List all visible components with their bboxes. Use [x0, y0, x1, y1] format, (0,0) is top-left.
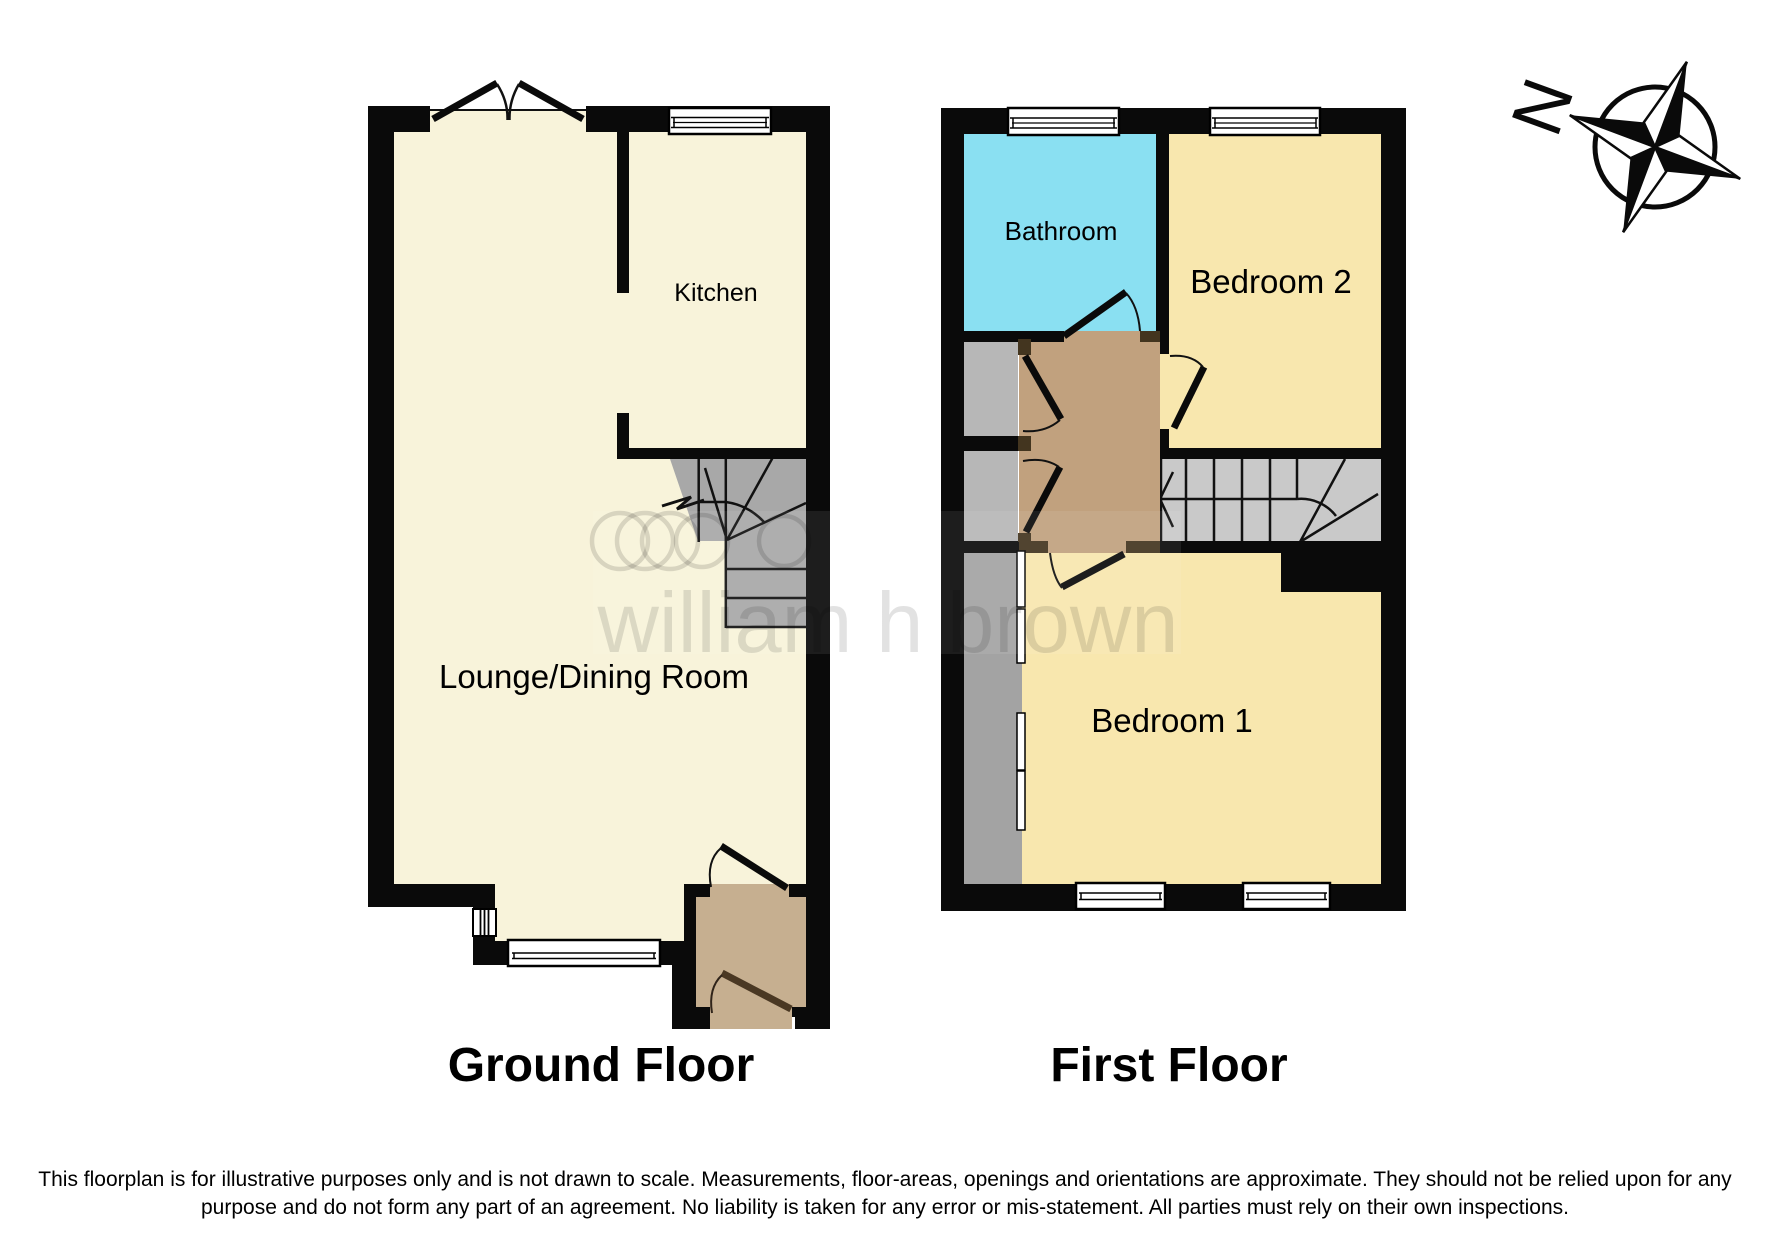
svg-text:Bathroom: Bathroom [1005, 216, 1118, 246]
svg-text:This floorplan is for illustra: This floorplan is for illustrative purpo… [38, 1168, 1732, 1191]
svg-text:Bedroom 2: Bedroom 2 [1190, 263, 1351, 300]
svg-text:Ground Floor: Ground Floor [448, 1039, 755, 1092]
svg-text:First Floor: First Floor [1050, 1039, 1287, 1092]
svg-text:Bedroom 1: Bedroom 1 [1091, 702, 1252, 739]
svg-text:purpose and do not form any pa: purpose and do not form any part of an a… [201, 1196, 1569, 1219]
svg-text:william h brown: william h brown [596, 576, 1178, 671]
svg-text:Kitchen: Kitchen [674, 279, 757, 307]
